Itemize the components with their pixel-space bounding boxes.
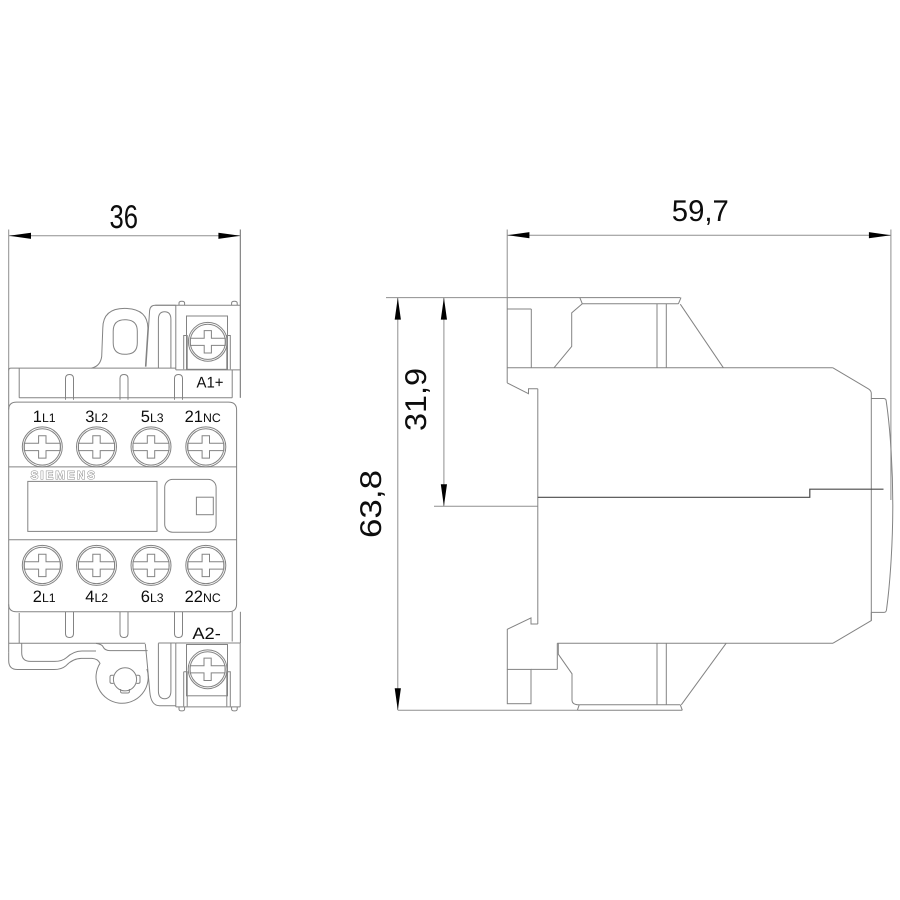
svg-text:59,7: 59,7 [672, 195, 729, 228]
svg-text:A2-: A2- [192, 625, 221, 643]
svg-text:36: 36 [110, 198, 139, 235]
svg-text:63,8: 63,8 [355, 470, 388, 538]
svg-text:6L3: 6L3 [141, 588, 164, 606]
svg-text:1L1: 1L1 [33, 408, 56, 426]
svg-text:2L1: 2L1 [33, 588, 56, 606]
svg-text:4L2: 4L2 [85, 588, 108, 606]
svg-text:21NC: 21NC [185, 408, 221, 426]
svg-text:31,9: 31,9 [400, 368, 433, 431]
svg-text:SIEMENS: SIEMENS [31, 470, 97, 482]
svg-text:3L2: 3L2 [85, 408, 108, 426]
svg-text:22NC: 22NC [185, 588, 221, 606]
svg-text:5L3: 5L3 [141, 408, 164, 426]
svg-text:A1+: A1+ [197, 375, 224, 392]
